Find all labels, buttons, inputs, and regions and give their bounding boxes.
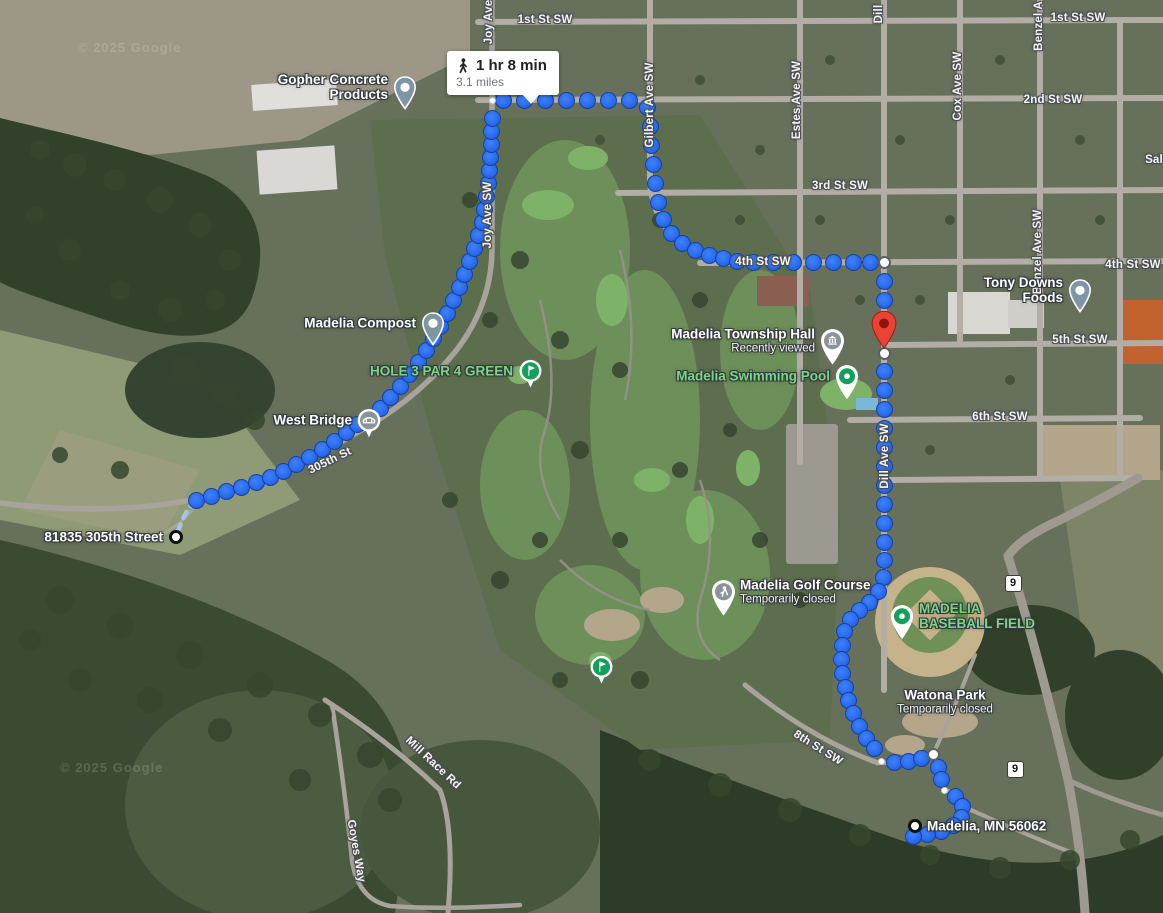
route-dot <box>600 92 617 109</box>
route-dot <box>188 492 205 509</box>
destination-label[interactable]: Madelia, MN 56062 <box>927 818 1046 833</box>
street-label: 1st St SW <box>1051 12 1106 24</box>
poi-label-gopher-concrete-products[interactable]: Gopher Concrete Products <box>278 72 388 102</box>
street-label: Sal <box>1145 154 1163 166</box>
route-dot <box>876 292 893 309</box>
route-dot <box>876 363 893 380</box>
poi-name: Gopher Concrete Products <box>278 72 388 102</box>
origin-label[interactable]: 81835 305th Street <box>44 529 163 544</box>
route-dot <box>805 254 822 271</box>
route-duration: 1 hr 8 min <box>476 57 547 74</box>
street-label: Cox Ave SW <box>952 52 964 121</box>
poi-pin-madelia-golf-course[interactable] <box>710 579 737 622</box>
route-dot <box>876 273 893 290</box>
poi-name: Watona Park <box>897 688 993 703</box>
street-label: Joy Ave <box>483 0 495 44</box>
poi-subtitle: Recently viewed <box>671 343 815 356</box>
route-point-small <box>941 787 948 794</box>
poi-pin-madelia-swimming-pool[interactable] <box>834 364 860 406</box>
poi-pin-hole-3-par-4-green[interactable] <box>518 359 543 394</box>
route-dot <box>845 254 862 271</box>
poi-label-hole-3-par-4-green[interactable]: HOLE 3 PAR 4 GREEN <box>370 363 513 378</box>
street-label: Gilbert Ave SW <box>644 62 656 147</box>
poi-name: Madelia Township Hall <box>671 327 815 342</box>
poi-label-madelia-swimming-pool[interactable]: Madelia Swimming Pool <box>676 368 830 383</box>
poi-subtitle: Temporarily closed <box>897 704 993 717</box>
route-dot <box>876 534 893 551</box>
route-dot <box>621 92 638 109</box>
poi-label-madelia-township-hall[interactable]: Madelia Township HallRecently viewed <box>671 327 815 356</box>
poi-name: Madelia Compost <box>304 315 416 330</box>
route-dot <box>484 110 501 127</box>
poi-label-madelia-golf-course[interactable]: Madelia Golf CourseTemporarily closed <box>740 578 871 607</box>
poi-name: MADELIA BASEBALL FIELD <box>919 601 1035 631</box>
route-dot <box>579 92 596 109</box>
route-dot <box>203 488 220 505</box>
route-dot <box>876 515 893 532</box>
route-dot <box>933 771 950 788</box>
map-attribution: © 2025 Google <box>78 40 182 55</box>
poi-name: Madelia Swimming Pool <box>676 368 830 383</box>
destination-marker[interactable] <box>908 819 922 833</box>
poi-pin-gopher-concrete-products[interactable] <box>393 76 417 115</box>
route-dot <box>233 479 250 496</box>
street-label: Dill <box>873 5 885 24</box>
route-dot <box>866 740 883 757</box>
street-label: Goyes Way <box>345 819 368 883</box>
route-dot <box>876 496 893 513</box>
street-label: 4th St SW <box>735 256 790 268</box>
route-dot <box>876 382 893 399</box>
bubble-pointer <box>523 95 539 104</box>
poi-pin-madelia-compost[interactable] <box>421 312 445 351</box>
route-point-small <box>489 97 496 104</box>
route-dot <box>876 401 893 418</box>
route-dot <box>650 194 667 211</box>
highway-shield: 9 <box>1007 761 1024 778</box>
poi-name: Madelia Golf Course <box>740 578 871 593</box>
poi-name: Tony Downs Foods <box>963 275 1063 305</box>
route-dot <box>558 92 575 109</box>
street-label: Mill Race Rd <box>403 734 463 791</box>
map-attribution: © 2025 Google <box>60 760 164 775</box>
route-dot <box>862 254 879 271</box>
route-dot <box>218 483 235 500</box>
route-distance: 3.1 miles <box>456 75 547 89</box>
street-label: 4th St SW <box>1105 259 1160 271</box>
origin-marker[interactable] <box>169 530 183 544</box>
poi-label-madelia-compost[interactable]: Madelia Compost <box>304 315 416 330</box>
route-dot <box>876 552 893 569</box>
route-dot <box>825 254 842 271</box>
poi-name: HOLE 3 PAR 4 GREEN <box>370 363 513 378</box>
poi-pin-west-bridge[interactable] <box>356 408 382 444</box>
route-summary-bubble[interactable]: 1 hr 8 min 3.1 miles <box>447 51 559 95</box>
highway-shield: 9 <box>1005 575 1022 592</box>
poi-label-watona-park[interactable]: Watona ParkTemporarily closed <box>897 688 993 717</box>
satellite-map-viewport[interactable]: Gopher Concrete ProductsMadelia Compost … <box>0 0 1163 913</box>
route-point-small <box>878 758 885 765</box>
street-label: 6th St SW <box>972 411 1027 423</box>
street-label: 8th St SW <box>791 728 844 768</box>
street-label: 5th St SW <box>1052 334 1107 346</box>
street-label: Dill Ave SW <box>879 423 891 488</box>
poi-pin-tony-downs-foods[interactable] <box>1068 279 1092 318</box>
route-waypoint-handle[interactable] <box>927 748 940 761</box>
poi-subtitle: Temporarily closed <box>740 594 871 607</box>
poi-name: West Bridge <box>273 412 352 427</box>
street-label: Benzel A <box>1033 1 1045 51</box>
route-dot <box>645 156 662 173</box>
street-label: Estes Ave SW <box>791 61 803 139</box>
street-label: Joy Ave SW <box>482 182 494 249</box>
poi-pin-golf-hole[interactable] <box>589 655 614 690</box>
walking-icon <box>456 58 470 74</box>
poi-pin-madelia-baseball-field[interactable] <box>889 604 915 646</box>
poi-label-madelia-baseball-field[interactable]: MADELIA BASEBALL FIELD <box>919 601 1035 631</box>
destination-pin[interactable] <box>870 310 898 355</box>
street-label: 2nd St SW <box>1024 94 1083 106</box>
route-dot <box>647 175 664 192</box>
route-waypoint-handle[interactable] <box>878 256 891 269</box>
street-label: 1st St SW <box>518 14 573 26</box>
map-overlay: Gopher Concrete ProductsMadelia Compost … <box>0 0 1163 913</box>
poi-label-west-bridge[interactable]: West Bridge <box>273 412 352 427</box>
poi-label-tony-downs-foods[interactable]: Tony Downs Foods <box>963 275 1063 305</box>
street-label: 3rd St SW <box>812 180 868 192</box>
